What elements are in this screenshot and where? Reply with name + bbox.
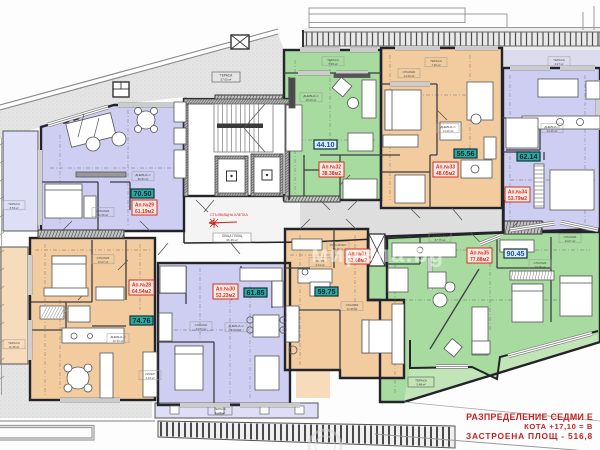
svg-text:РАЗПРЕДЕЛЕНИЕ СЕДМИ Е: РАЗПРЕДЕЛЕНИЕ СЕДМИ Е	[466, 412, 593, 422]
svg-text:Ап.№35: Ап.№35	[470, 251, 489, 257]
svg-text:7.30 м²: 7.30 м²	[431, 63, 440, 67]
svg-text:36.80 м²: 36.80 м²	[138, 177, 149, 181]
svg-text:13.07 м²: 13.07 м²	[196, 327, 207, 331]
svg-text:12.07 м²: 12.07 м²	[565, 239, 576, 243]
svg-text:Ап.№28: Ап.№28	[132, 283, 151, 289]
svg-text:Ап.№29: Ап.№29	[135, 203, 154, 209]
svg-text:12.36 м²: 12.36 м²	[347, 307, 358, 311]
svg-text:8.53 м²: 8.53 м²	[9, 206, 18, 210]
svg-text:ТЕРАСА: ТЕРАСА	[214, 407, 225, 411]
svg-text:62.14: 62.14	[520, 152, 538, 161]
svg-text:11.68 м²: 11.68 м²	[215, 411, 225, 415]
svg-text:14.46 м²: 14.46 м²	[547, 129, 558, 133]
svg-text:55.56: 55.56	[457, 149, 475, 158]
svg-text:20.30 м²: 20.30 м²	[113, 339, 124, 343]
svg-text:11.08 м²: 11.08 м²	[98, 213, 108, 217]
svg-text:11.45 м²: 11.45 м²	[9, 345, 19, 349]
svg-text:18.46 м²: 18.46 м²	[306, 98, 317, 102]
svg-text:59.75: 59.75	[318, 287, 336, 296]
svg-text:23.00 м²: 23.00 м²	[231, 328, 242, 332]
svg-text:СТЪЛБИЩНА КЛЕТКА: СТЪЛБИЩНА КЛЕТКА	[210, 213, 248, 217]
svg-text:13.07 м²: 13.07 м²	[98, 260, 109, 264]
svg-text:КОТА +17,10 = В: КОТА +17,10 = В	[524, 422, 593, 431]
svg-text:57.05 м²: 57.05 м²	[221, 78, 232, 82]
svg-text:Ап.№30: Ап.№30	[216, 287, 235, 293]
svg-text:48.05м2: 48.05м2	[436, 171, 455, 177]
svg-text:90.45: 90.45	[507, 249, 525, 258]
svg-text:14.40 м²: 14.40 м²	[404, 74, 415, 78]
svg-text:61.85: 61.85	[247, 288, 265, 297]
svg-text:61.19м2: 61.19м2	[135, 209, 154, 215]
svg-text:5.48 м²: 5.48 м²	[416, 383, 425, 387]
svg-text:Ап.№33: Ап.№33	[436, 165, 455, 171]
svg-text:46.39 м²: 46.39 м²	[226, 238, 237, 242]
svg-text:5.36 м²: 5.36 м²	[328, 62, 337, 66]
svg-text:44.10: 44.10	[317, 140, 335, 149]
svg-text:53.79м2: 53.79м2	[508, 196, 527, 202]
svg-text:74.76: 74.76	[133, 316, 151, 325]
svg-text:3.22 м²: 3.22 м²	[145, 376, 154, 380]
svg-text:4.27 м²: 4.27 м²	[554, 62, 563, 66]
svg-text:10.36 м²: 10.36 м²	[535, 265, 546, 269]
svg-text:64.54м2: 64.54м2	[132, 289, 151, 295]
svg-text:14.40 м²: 14.40 м²	[443, 129, 454, 133]
svg-text:38.38м2: 38.38м2	[322, 171, 341, 177]
svg-text:ЗАСТРОЕНА ПЛОЩ - 516,8: ЗАСТРОЕНА ПЛОЩ - 516,8	[466, 431, 593, 441]
svg-text:70.50: 70.50	[134, 189, 152, 198]
svg-text:Ап.№32: Ап.№32	[322, 165, 341, 171]
svg-text:77.88м2: 77.88м2	[470, 257, 489, 263]
svg-text:мирела.bg: мирела.bg	[311, 241, 444, 267]
svg-text:53.23м2: 53.23м2	[216, 293, 235, 299]
svg-text:Ап.№34: Ап.№34	[508, 190, 527, 196]
